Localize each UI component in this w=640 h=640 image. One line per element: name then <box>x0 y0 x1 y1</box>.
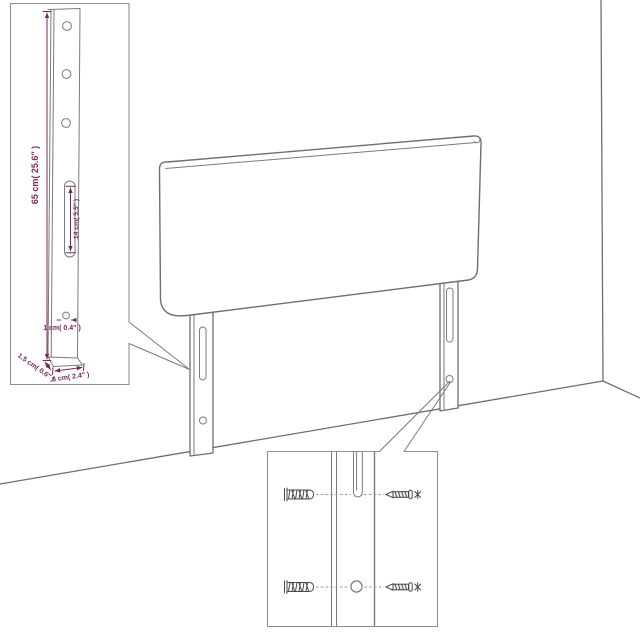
leg-top-edge <box>48 9 80 10</box>
headboard-leg-right <box>440 279 458 412</box>
leg-bottom-face <box>48 357 83 367</box>
leg-left-edges <box>48 10 54 358</box>
keyhole-slot-detail <box>354 452 363 497</box>
callout-wedge-left <box>129 322 190 370</box>
width-dim-line <box>55 368 82 372</box>
wall-plug-icon <box>285 488 314 501</box>
leg-detail-drawing <box>48 9 83 367</box>
round-hole-detail <box>351 581 362 592</box>
width-dimension-label: 6 cm( 2.4″ ) <box>52 371 90 383</box>
hole-dimension-label: 1 cm( 0.4″ ) <box>43 325 81 332</box>
assembly-diagram-canvas: 65 cm( 25.6″ ) 14 cm( 5.5″ ) 1 cm( 0.4″ … <box>0 0 640 640</box>
right-leg-body <box>440 279 458 412</box>
mount-inset-border <box>268 452 438 627</box>
leg-hole-3 <box>62 119 71 128</box>
screw-icon <box>386 490 421 499</box>
mount-row-top <box>285 488 421 501</box>
wall-mount-inset <box>285 452 421 626</box>
product-diagram: 65 cm( 25.6″ ) 14 cm( 5.5″ ) 1 cm( 0.4″ … <box>0 0 640 640</box>
floor-line <box>0 381 640 484</box>
leg-hole-1 <box>63 22 72 31</box>
panel-outline <box>159 136 481 316</box>
leg-hole-2 <box>62 70 71 79</box>
depth-dim-line <box>45 362 51 370</box>
height-dimension-label: 65 cm( 25.6″ ) <box>30 146 40 204</box>
headboard-panel <box>159 136 481 316</box>
headboard-leg-left <box>190 312 213 457</box>
leg-right-edge <box>78 9 81 359</box>
leg-dimension-inset: 65 cm( 25.6″ ) 14 cm( 5.5″ ) 1 cm( 0.4″ … <box>16 9 90 384</box>
slot-dimension-label: 14 cm( 5.5″ ) <box>73 199 80 239</box>
wall-corner-line <box>601 0 603 381</box>
screw-icon <box>386 583 421 592</box>
left-leg-body <box>190 312 213 457</box>
wall-plug-icon <box>285 581 314 594</box>
leg-bottom-hole <box>63 312 70 319</box>
leg-closeup <box>332 452 375 626</box>
leg-closeup-left-edges <box>332 452 337 626</box>
